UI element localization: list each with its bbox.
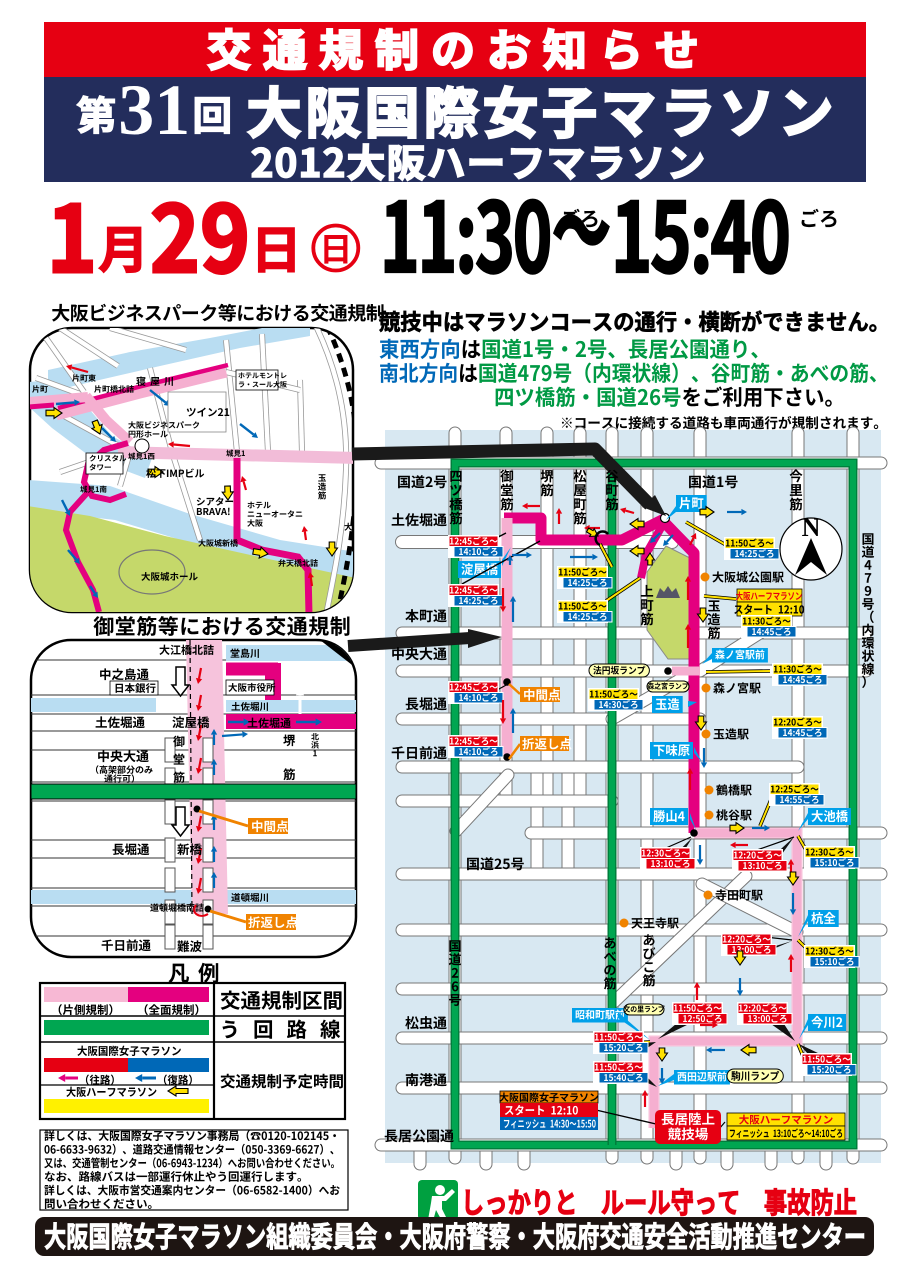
svg-text:N: N: [802, 513, 821, 542]
svg-text:31: 31: [118, 70, 190, 150]
